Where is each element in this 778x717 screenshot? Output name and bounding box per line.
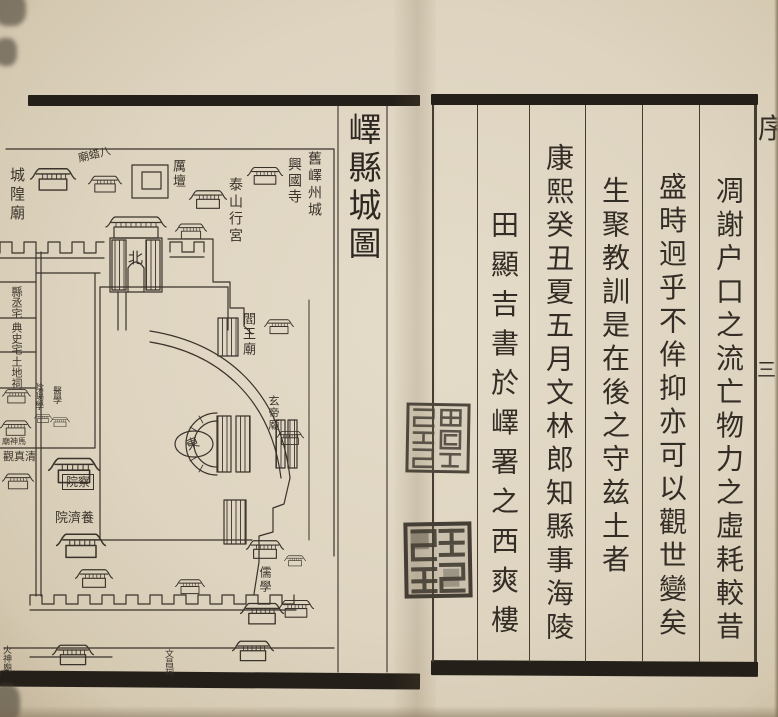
right-page-bottom-border <box>431 660 758 677</box>
map-label-censorate-hostel: 察院 <box>62 474 94 490</box>
book-spread-scan: 嶧縣城圖 舊嶧州城 興國寺 泰山行宮 厲壇 八蜡廟 城隍廟 北 閻王廟 玄帝廟 … <box>0 0 778 717</box>
map-label-xingguo-temple: 興國寺 <box>286 157 300 205</box>
map-label-confucian-school: 儒學 <box>259 566 271 594</box>
lower-collector-seal <box>402 520 473 599</box>
map-label-county-deputy-residence: 縣丞宅 <box>10 286 21 319</box>
map-label-almshouse: 養濟院 <box>55 511 94 524</box>
map-title: 嶧縣城圖 <box>344 112 377 264</box>
map-label-tudi-shrine: 土地祠 <box>10 356 21 389</box>
map-label-dianshi-residence: 典史宅 <box>10 322 21 355</box>
map-label-mashen-temple: 馬神廟 <box>2 438 26 446</box>
text-column-2: 盛時迥乎不侔抑亦可以觀世變矣 <box>656 172 684 641</box>
map-label-xuandi-temple: 玄帝廟 <box>267 395 278 431</box>
bottom-paper-edge <box>0 706 778 717</box>
map-label-yanwang-temple: 閻王廟 <box>242 312 255 357</box>
map-label-chenghuang-temple: 城隍廟 <box>8 167 23 224</box>
map-label-huoshen-temple: 火神廟 <box>2 645 11 672</box>
map-label-li-altar: 厲壇 <box>172 159 185 189</box>
right-page-right-border <box>754 105 757 662</box>
map-label-old-city: 舊嶧州城 <box>306 151 320 219</box>
map-label-medical-school: 醫學 <box>52 386 61 404</box>
map-label-qingzhen-temple: 清真觀 <box>3 452 36 463</box>
text-column-4: 康熙癸丑夏五月文林郎知縣事海陵 <box>543 143 571 646</box>
city-map <box>0 0 420 717</box>
column-rule-5 <box>699 105 700 662</box>
text-column-5: 田顯吉書於嶧署之西爽樓 <box>488 210 516 645</box>
map-label-north-gate: 北 <box>128 252 143 267</box>
column-rule-4 <box>642 105 643 662</box>
map-label-taishan-palace: 泰山行宮 <box>227 177 241 245</box>
text-column-3: 生聚教訓是在後之守兹土者 <box>599 176 627 578</box>
map-label-yinyang-school: 陰陽學 <box>34 383 43 410</box>
column-rule-3 <box>585 105 586 662</box>
column-rule-2 <box>529 105 530 662</box>
column-rule-1 <box>477 105 478 662</box>
map-label-wenchang-shrine: 文昌祠 <box>164 649 173 676</box>
right-paper-edge <box>774 0 778 717</box>
corner-stain-top-left-1 <box>0 0 26 26</box>
corner-stain-top-left-2 <box>0 38 17 66</box>
text-column-1: 凋謝户口之流亡物力之虛耗較昔 <box>713 176 741 645</box>
right-page-top-border <box>431 94 758 105</box>
book-gutter-fold <box>394 0 436 717</box>
upper-collector-seal <box>404 401 471 474</box>
